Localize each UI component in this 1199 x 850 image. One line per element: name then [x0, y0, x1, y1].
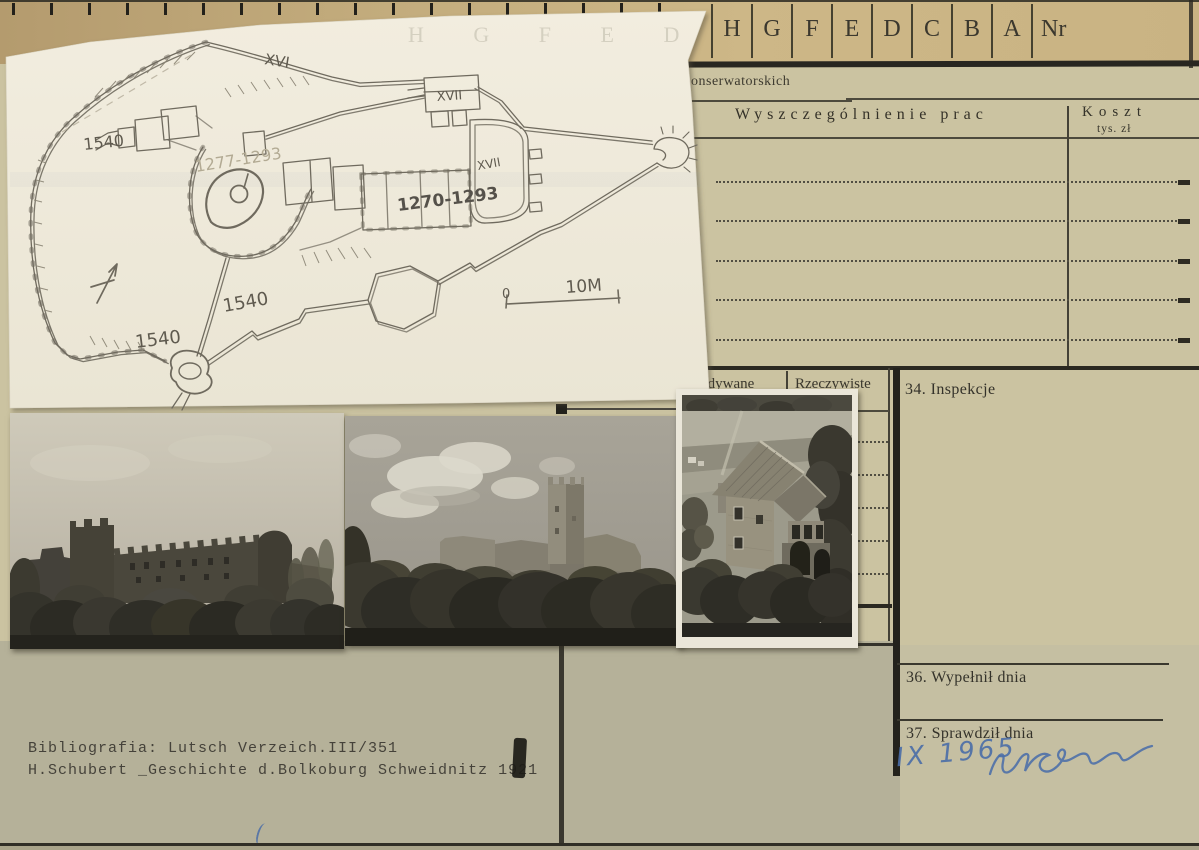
header-col-f: F [791, 4, 831, 58]
archival-card: H G F E D C B A Nr onserwatorskich Wyszc… [0, 0, 1199, 850]
section-divider-line [700, 366, 1199, 370]
plan-paper [6, 11, 709, 408]
rule [690, 100, 852, 102]
ghost-letters: H G F E D C [408, 22, 714, 47]
header-letter-row: H G F E D C B A Nr [711, 4, 1093, 58]
header-col-d: D [871, 4, 911, 58]
header-col-b: B [951, 4, 991, 58]
main-vertical-bar [893, 368, 900, 776]
signature [972, 736, 1167, 786]
rule [846, 98, 1199, 100]
label-xvii-north: XVII [436, 88, 462, 105]
rule [897, 663, 1169, 665]
scale-ten: 10M [565, 276, 603, 298]
rule-thick [855, 604, 892, 608]
works-table-title: Wyszczególnienie prac [735, 106, 988, 124]
inspections-label: 34. Inspekcje [905, 381, 996, 399]
scale-zero: 0 [502, 287, 510, 302]
castle-plan-sheet: H G F E D C [0, 0, 714, 418]
dotted-row-stub [858, 507, 888, 509]
works-row [716, 222, 1188, 262]
header-col-e: E [831, 4, 871, 58]
works-row [716, 143, 1188, 183]
bibliography-line-1: Bibliografia: Lutsch Verzeich.III/351 [28, 740, 398, 757]
header-col-c: C [911, 4, 951, 58]
header-col-a: A [991, 4, 1031, 58]
dotted-row-stub [858, 474, 888, 476]
rule [856, 410, 889, 412]
works-row [716, 262, 1188, 302]
works-table-rows [716, 143, 1188, 341]
dotted-row-stub [858, 441, 888, 443]
works-header-underline [690, 137, 1199, 139]
cost-column-label: Koszt [1082, 104, 1147, 121]
ink-blot [512, 738, 527, 779]
photo-castle-panorama [10, 413, 344, 649]
photo-castle-aerial-image [682, 395, 852, 637]
cost-column-unit: tys. zł [1097, 123, 1131, 135]
dotted-row-stub [858, 573, 888, 575]
header-divider-band [656, 60, 1199, 67]
card-bottom-strip [0, 846, 1199, 850]
lower-card-divider-line [559, 643, 564, 850]
bibliography-line-2: H.Schubert _Geschichte d.Bolkoburg Schwe… [28, 762, 538, 779]
card-right-edge [1189, 0, 1193, 68]
works-row [716, 183, 1188, 223]
dotted-row-stub [858, 540, 888, 542]
photo-castle-hill [345, 416, 683, 646]
header-col-g: G [751, 4, 791, 58]
header-col-nr: Nr [1031, 4, 1093, 58]
header-col-h: H [711, 4, 751, 58]
filled-date-label: 36. Wypełnił dnia [906, 669, 1027, 687]
works-row [716, 301, 1188, 341]
rule [897, 719, 1163, 721]
photo-castle-aerial [676, 389, 858, 648]
